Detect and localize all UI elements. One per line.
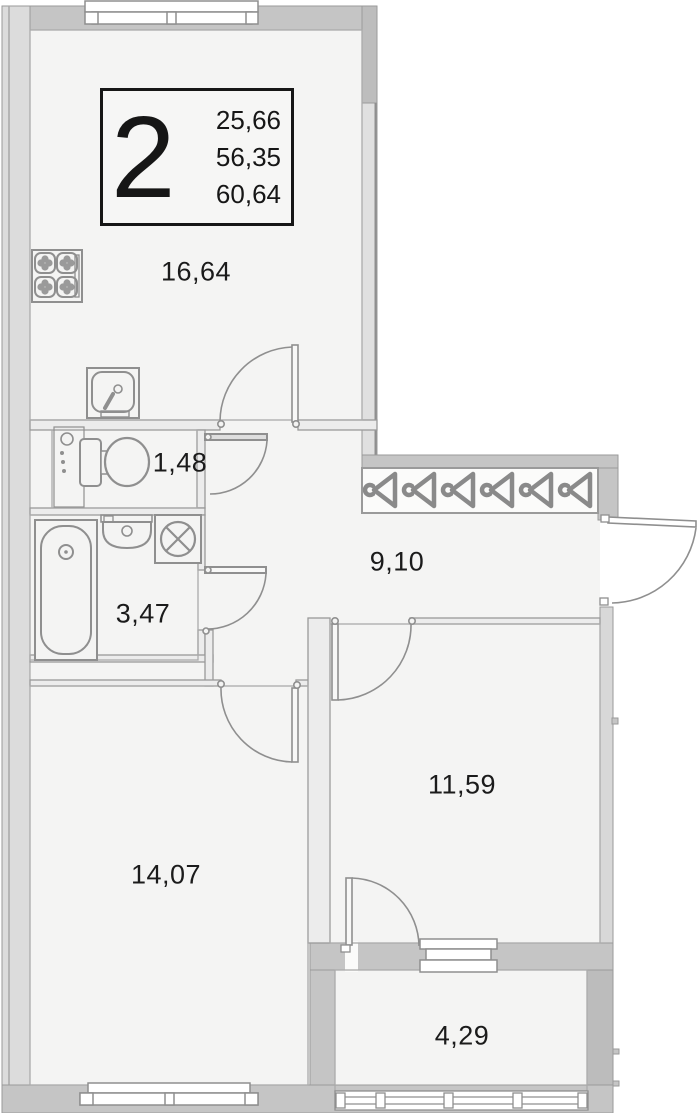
toilet-icon — [80, 438, 149, 486]
glazed-panels-icon — [362, 468, 598, 513]
room-label-room-1: 14,07 — [131, 860, 201, 891]
living-area-value: 25,66 — [216, 102, 281, 139]
floor-plan: 2 25,66 56,35 60,64 16,64 1,48 3,47 9,10… — [0, 0, 700, 1113]
room-label-balcony: 4,29 — [435, 1021, 490, 1052]
kitchen-sink-icon — [87, 368, 139, 418]
room-label-wc: 1,48 — [153, 448, 208, 479]
room-label-kitchen: 16,64 — [161, 257, 231, 288]
total-area-value: 60,64 — [216, 176, 281, 213]
washing-machine-icon — [155, 515, 201, 563]
balcony-window-icon — [420, 939, 497, 972]
room-label-bathroom: 3,47 — [116, 599, 171, 630]
apartment-area-value: 56,35 — [216, 139, 281, 176]
balcony-glazing-icon — [335, 1091, 588, 1110]
room-label-room-2: 11,59 — [428, 770, 496, 801]
window-icon — [80, 1083, 258, 1105]
stove-icon — [32, 250, 82, 302]
room-label-hallway: 9,10 — [370, 547, 425, 578]
title-block: 2 25,66 56,35 60,64 — [100, 88, 294, 226]
window-icon — [85, 1, 258, 24]
unit-number: 2 — [111, 105, 173, 209]
entrance-door-arc — [600, 515, 696, 605]
title-area-values: 25,66 56,35 60,64 — [216, 102, 281, 213]
bathtub-icon — [35, 520, 97, 660]
